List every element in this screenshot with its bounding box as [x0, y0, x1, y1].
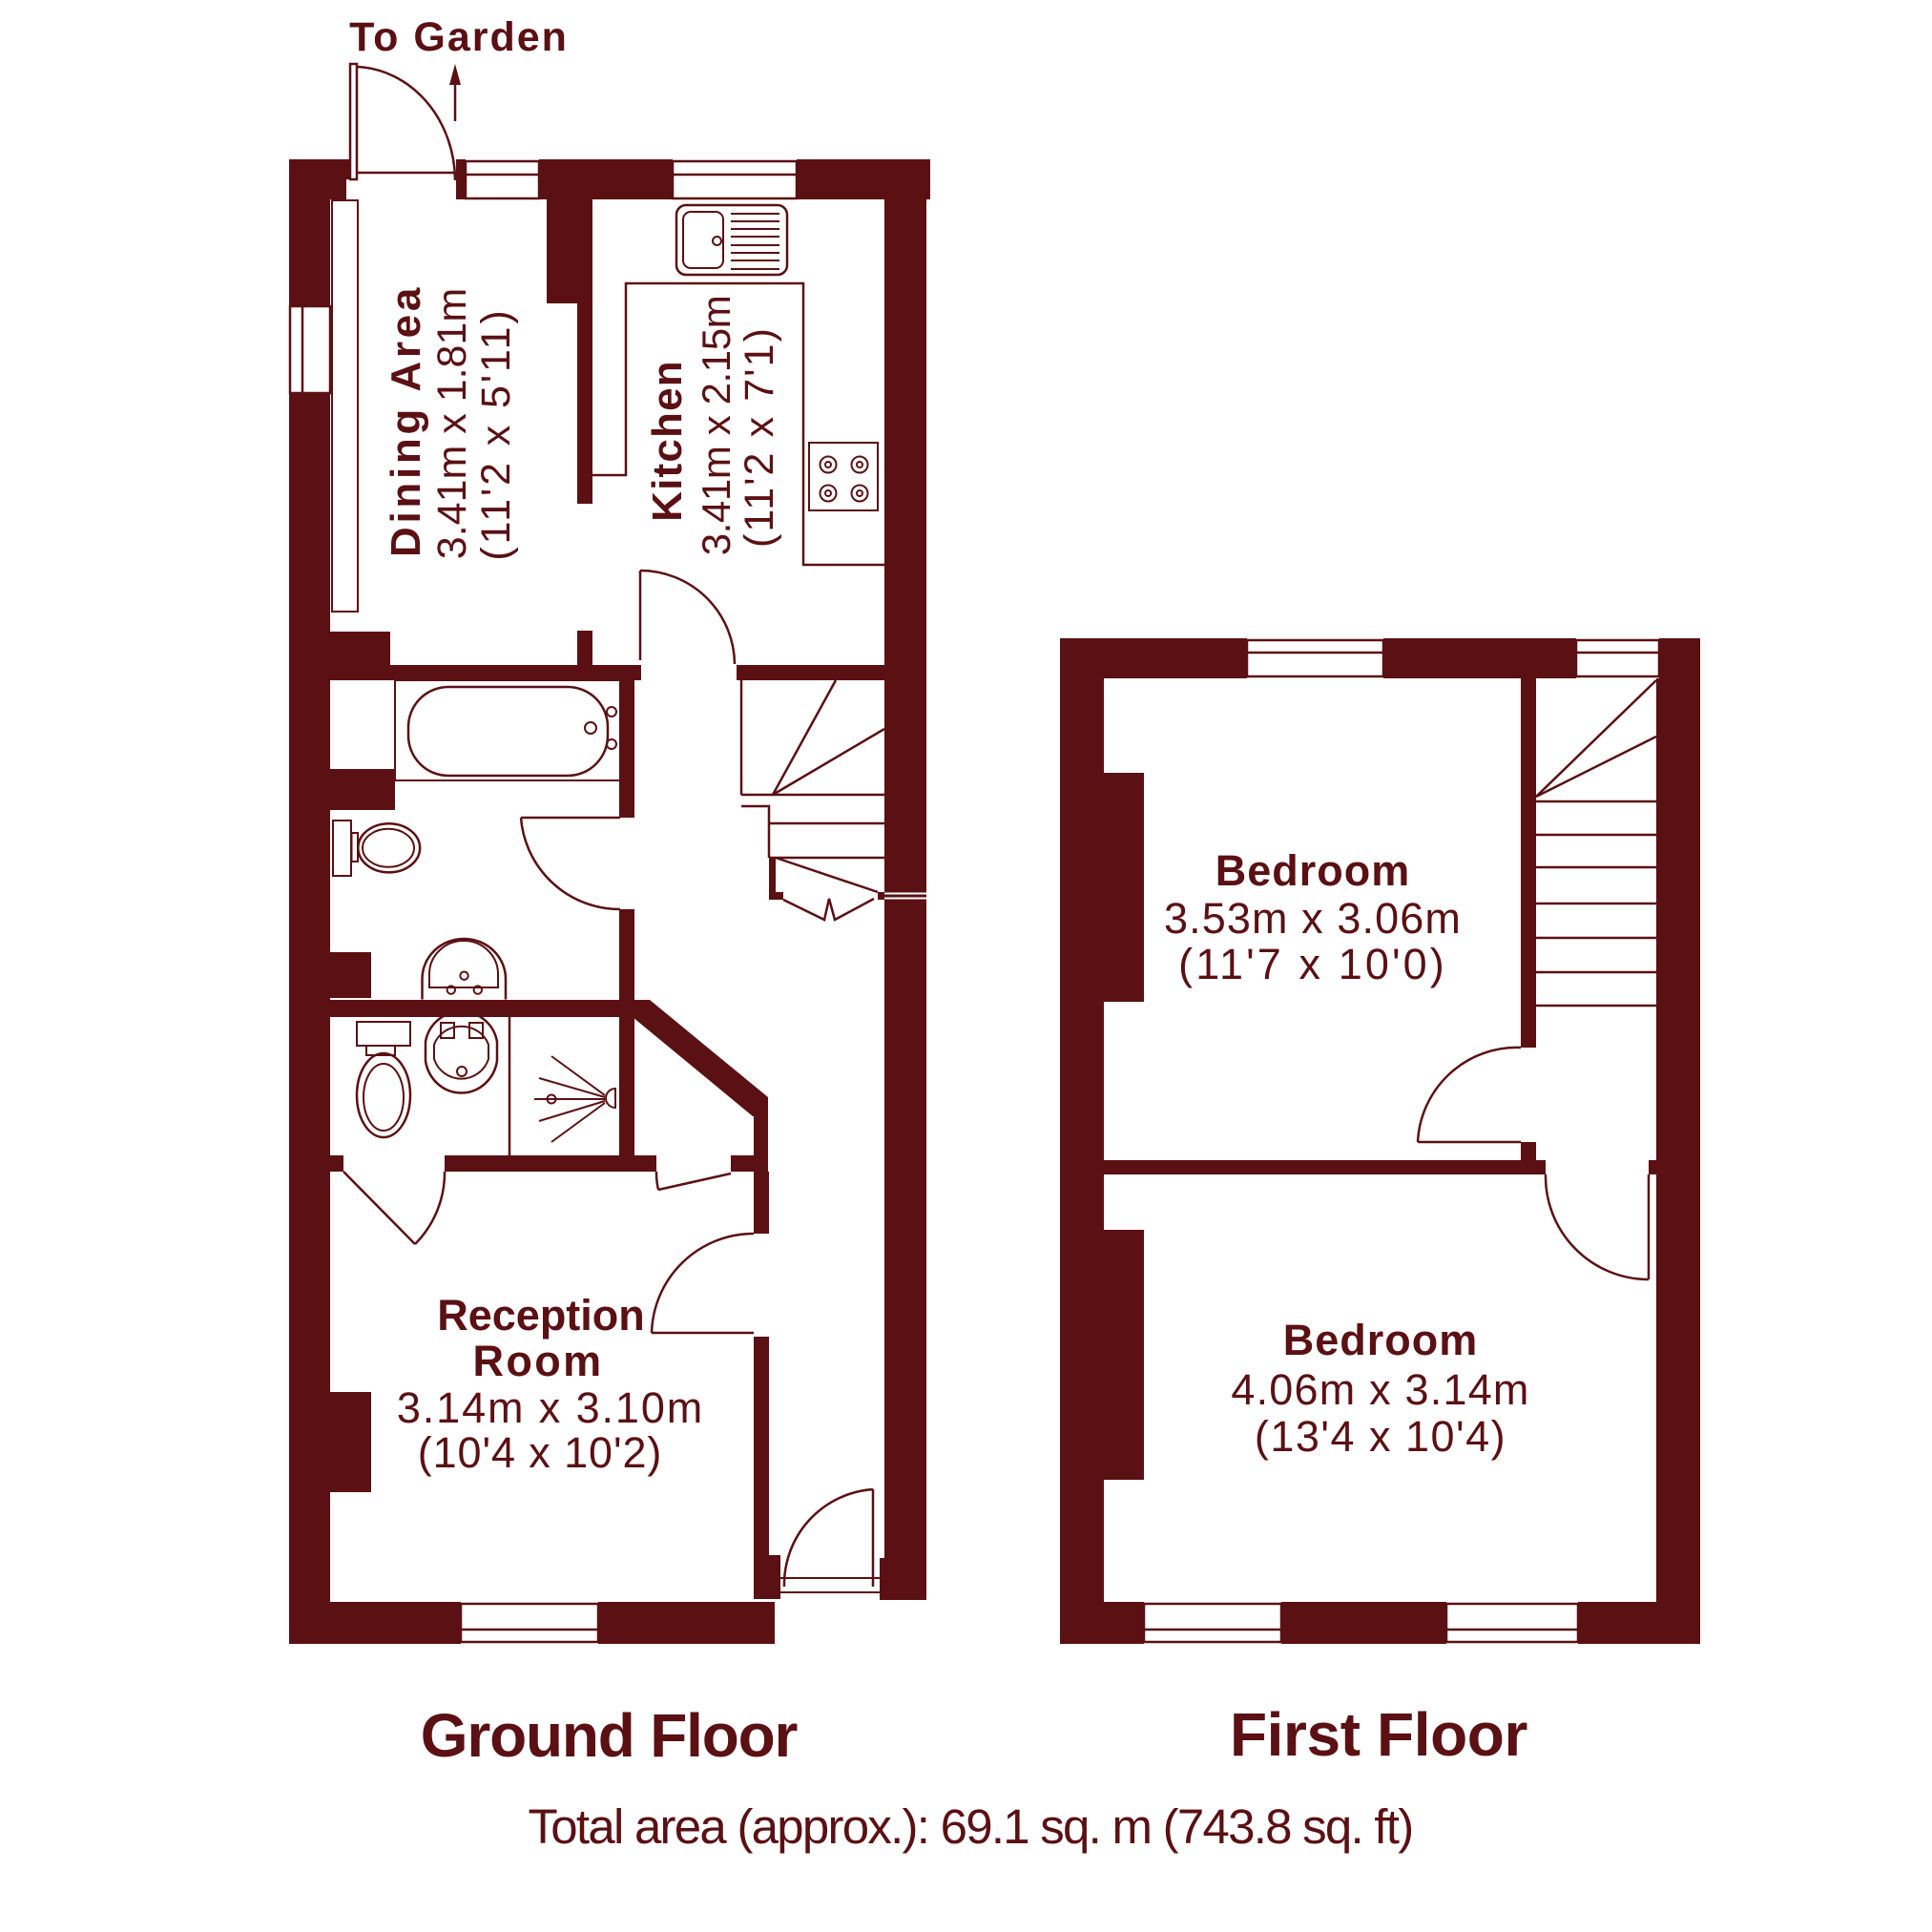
svg-text:(11'2 x 7'1): (11'2 x 7'1) — [737, 326, 782, 548]
svg-text:First Floor: First Floor — [1230, 1700, 1527, 1769]
svg-text:3.41m x 1.81m: 3.41m x 1.81m — [429, 288, 475, 559]
svg-text:Bedroom: Bedroom — [1215, 846, 1411, 895]
svg-text:Dining Area: Dining Area — [383, 284, 429, 557]
svg-text:(11'2 x 5'11): (11'2 x 5'11) — [473, 307, 519, 560]
svg-text:3.14m x 3.10m: 3.14m x 3.10m — [397, 1383, 704, 1432]
svg-text:3.41m x 2.15m: 3.41m x 2.15m — [694, 296, 738, 556]
svg-text:(11'7 x 10'0): (11'7 x 10'0) — [1178, 940, 1447, 988]
svg-text:Kitchen: Kitchen — [644, 360, 691, 522]
svg-text:Total area (approx.): 69.1 sq.: Total area (approx.): 69.1 sq. m (743.8 … — [529, 1799, 1413, 1854]
svg-text:Ground Floor: Ground Floor — [421, 1701, 798, 1770]
svg-text:(13'4 x 10'4): (13'4 x 10'4) — [1255, 1412, 1506, 1461]
svg-text:4.06m x 3.14m: 4.06m x 3.14m — [1231, 1365, 1529, 1414]
svg-text:Room: Room — [472, 1337, 603, 1385]
svg-text:(10'4 x 10'2): (10'4 x 10'2) — [418, 1428, 663, 1477]
svg-text:Reception: Reception — [437, 1291, 645, 1340]
svg-text:Bedroom: Bedroom — [1283, 1316, 1479, 1364]
svg-text:3.53m x 3.06m: 3.53m x 3.06m — [1164, 894, 1462, 943]
svg-text:To Garden: To Garden — [349, 14, 569, 60]
